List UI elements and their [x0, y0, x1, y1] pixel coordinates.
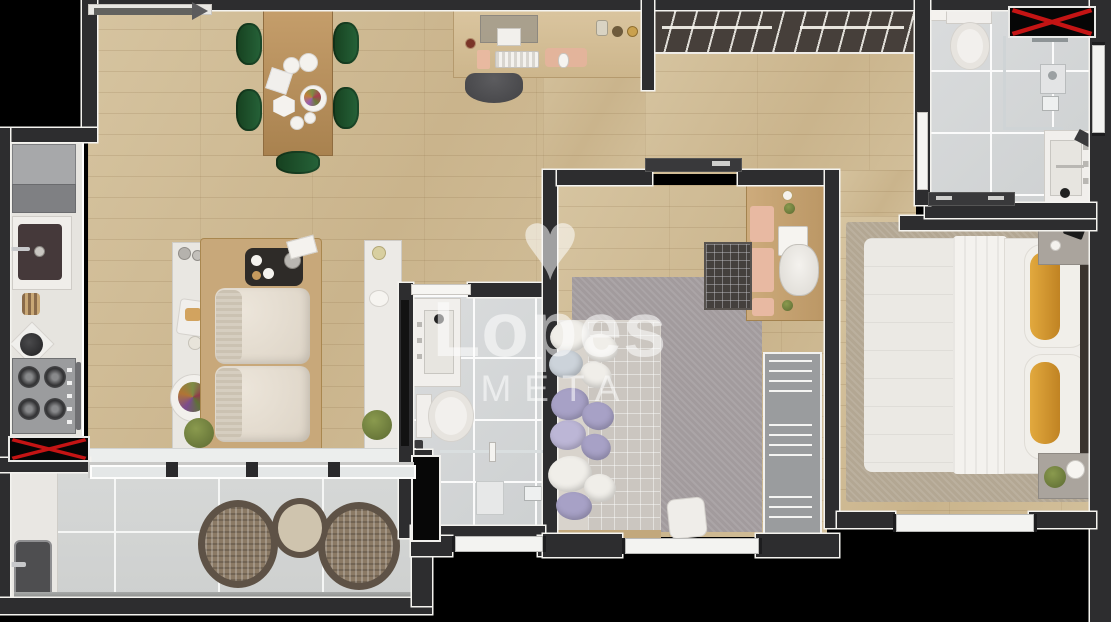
ottoman — [666, 496, 708, 540]
bedroom-middle-window — [622, 538, 762, 554]
sliding-door-handle — [988, 196, 1004, 200]
nightstand-plant — [1044, 466, 1066, 488]
wall — [82, 0, 1100, 10]
desk-plant — [782, 300, 793, 311]
balcony-sink — [14, 540, 52, 600]
heart-icon: ♥ — [410, 200, 690, 290]
wall — [738, 170, 825, 185]
accent-pillow-orange — [1030, 362, 1060, 444]
desk-jar — [596, 20, 608, 36]
table-lamp — [1066, 460, 1085, 479]
console-plant — [362, 410, 392, 440]
watermark: ♥ Lopes META — [410, 200, 690, 400]
coffee-cup — [263, 268, 274, 279]
shower-glass — [1003, 36, 1006, 130]
bathroom-top-door-leaf — [917, 112, 928, 190]
wardrobe-hangers — [769, 496, 812, 526]
wall — [557, 170, 652, 185]
door-handle — [166, 462, 178, 477]
dining-chair — [333, 87, 359, 129]
nightstand-ornament — [1050, 240, 1061, 251]
wardrobe-hangers — [769, 360, 812, 394]
dining-chair — [236, 89, 262, 131]
rattan-chair — [318, 502, 400, 590]
console-candle — [372, 246, 386, 260]
stove-burner — [44, 366, 66, 388]
desk-mat — [750, 206, 774, 242]
desk-plant — [784, 203, 795, 214]
wall — [756, 534, 839, 557]
bistro-table — [272, 498, 328, 558]
tv — [401, 300, 409, 446]
coffee-cup — [465, 38, 476, 49]
red-x-icon — [10, 438, 88, 460]
wall — [642, 0, 654, 90]
office-chair — [465, 73, 523, 103]
kettle — [20, 333, 43, 356]
sliding-door-handle — [936, 196, 952, 200]
stove-burner — [44, 398, 66, 420]
console-dish — [369, 290, 389, 307]
desk-mat — [750, 248, 774, 292]
sliding-door-handle — [712, 161, 730, 166]
bathroom-top-window — [1092, 42, 1105, 136]
floor-plan: ♥ Lopes META — [0, 0, 1111, 622]
watermark-division: META — [410, 368, 690, 410]
floor-drain — [524, 486, 542, 501]
stove-burner — [18, 398, 40, 420]
rattan-chair — [198, 500, 278, 588]
notebook — [477, 50, 490, 69]
bedroom-master-window — [893, 514, 1037, 532]
pastry — [252, 271, 261, 280]
crib — [704, 242, 752, 310]
wall — [837, 512, 895, 528]
soap-dispenser — [1060, 188, 1070, 198]
master-bed-throw — [953, 236, 1007, 474]
monitor-stand — [497, 28, 521, 46]
desk-ornament — [627, 26, 638, 37]
floor-drain — [1042, 96, 1059, 111]
coffee-cup — [251, 255, 262, 266]
desk-mat — [752, 298, 774, 316]
headboard — [1080, 236, 1090, 474]
island-jar — [178, 247, 191, 260]
entrance-door-leaf — [94, 8, 194, 15]
crossed-shaft-marker — [8, 436, 90, 462]
desk-cup — [782, 190, 793, 201]
closet-hanger-rail — [800, 26, 904, 29]
dining-chair — [333, 22, 359, 64]
accent-pillow-orange — [1030, 252, 1060, 340]
shower-shelf — [476, 481, 504, 515]
bedroom-desk-chair — [779, 244, 819, 296]
door-handle — [246, 462, 258, 477]
utensil-crock — [22, 293, 40, 315]
bathroom-center-window — [452, 536, 546, 552]
dinner-plate — [299, 53, 318, 72]
mouse — [558, 53, 569, 68]
vanity-spout — [1056, 165, 1084, 168]
wall — [0, 128, 10, 612]
closet-hanger-rail — [662, 26, 772, 29]
sink-drain — [34, 246, 45, 257]
entrance-door-arrow — [192, 2, 208, 20]
stove-burner — [18, 366, 40, 388]
small-plate — [304, 112, 316, 124]
wall — [1029, 512, 1096, 528]
stove-knobs — [67, 368, 72, 424]
shower-rail — [1032, 38, 1068, 42]
dining-chair — [276, 151, 320, 174]
wall — [82, 0, 97, 142]
fridge-lower — [12, 184, 76, 213]
keyboard — [495, 51, 539, 68]
wardrobe-hangers — [769, 424, 812, 464]
door-handle — [328, 462, 340, 477]
wall — [0, 598, 432, 614]
shower-rose — [1048, 71, 1057, 80]
sofa-back-cushion — [216, 368, 242, 440]
oven-handle — [76, 362, 81, 430]
shower-glass — [1003, 127, 1063, 130]
desk-plant — [612, 26, 623, 37]
vanity-faucet-knobs — [1083, 144, 1089, 192]
toilet-bowl — [950, 22, 990, 70]
watermark-brand: Lopes — [410, 290, 690, 368]
red-x-icon — [1010, 8, 1094, 36]
wall — [543, 534, 622, 557]
small-plate — [290, 116, 304, 130]
wall — [0, 128, 97, 142]
wall — [825, 170, 839, 528]
hall-floor — [645, 50, 917, 174]
fridge — [12, 144, 76, 186]
toast — [185, 308, 201, 321]
hall-open-closet — [654, 6, 916, 54]
floor-plant — [184, 418, 214, 448]
sofa-back-cushion — [216, 290, 242, 362]
wall — [900, 216, 1096, 230]
crossed-shaft-marker — [1008, 6, 1096, 38]
salad-food — [304, 89, 321, 106]
shower-valve — [489, 442, 496, 462]
dining-chair — [236, 23, 262, 65]
